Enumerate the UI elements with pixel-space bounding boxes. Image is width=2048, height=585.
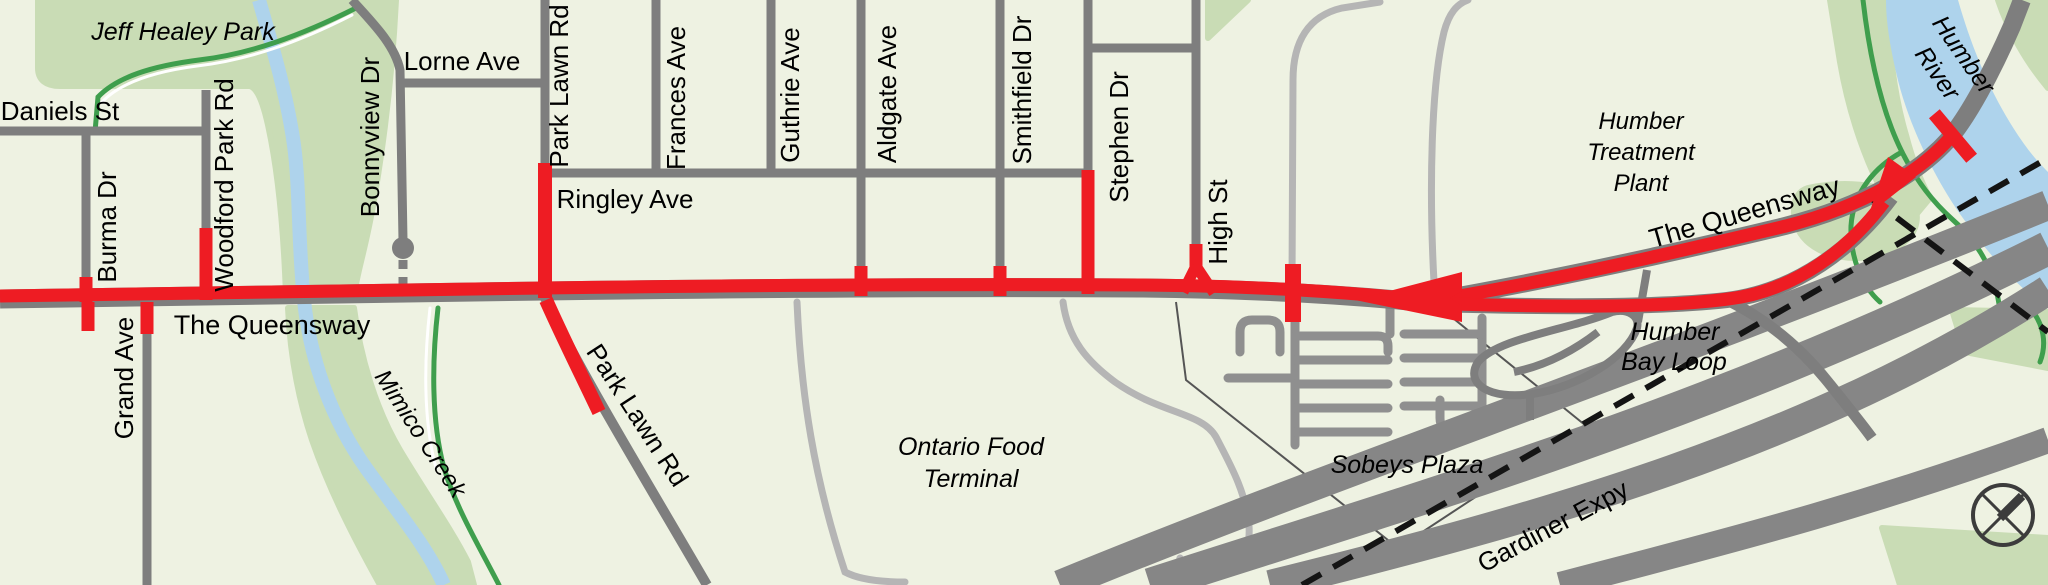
label-smithfield-dr: Smithfield Dr	[1007, 15, 1037, 164]
label-ontario-food-1: Ontario Food	[898, 433, 1045, 461]
label-sobeys-plaza: Sobeys Plaza	[1331, 451, 1484, 479]
label-humber-treatment-3: Plant	[1614, 170, 1670, 197]
label-woodford-park-rd: Woodford Park Rd	[209, 78, 239, 291]
queensway-map: Jeff Healey Park Daniels St Burma Dr Woo…	[0, 0, 2048, 585]
label-park-lawn-rd-n: Park Lawn Rd	[544, 4, 574, 167]
label-daniels-st: Daniels St	[1, 96, 120, 126]
label-humber-bay-2: Bay Loop	[1621, 348, 1727, 376]
label-burma-dr: Burma Dr	[92, 171, 122, 283]
label-bonnyview-dr: Bonnyview Dr	[355, 56, 385, 217]
label-frances-ave: Frances Ave	[661, 26, 691, 170]
label-humber-treatment-1: Humber	[1598, 108, 1684, 135]
label-humber-treatment-2: Treatment	[1587, 139, 1696, 166]
label-grand-ave: Grand Ave	[109, 317, 139, 439]
bonnyview-culdesac	[392, 237, 414, 259]
label-queensway-left: The Queensway	[174, 310, 371, 340]
label-high-st: High St	[1203, 179, 1233, 265]
label-stephen-dr: Stephen Dr	[1104, 71, 1134, 203]
label-jeff-healey-park: Jeff Healey Park	[90, 18, 276, 46]
label-ontario-food-2: Terminal	[924, 465, 1020, 493]
label-aldgate-ave: Aldgate Ave	[872, 25, 902, 163]
map-canvas: Jeff Healey Park Daniels St Burma Dr Woo…	[0, 0, 2048, 585]
label-humber-bay-1: Humber	[1631, 318, 1722, 346]
label-guthrie-ave: Guthrie Ave	[775, 27, 805, 162]
label-ringley-ave: Ringley Ave	[557, 184, 694, 214]
label-lorne-ave: Lorne Ave	[404, 46, 521, 76]
